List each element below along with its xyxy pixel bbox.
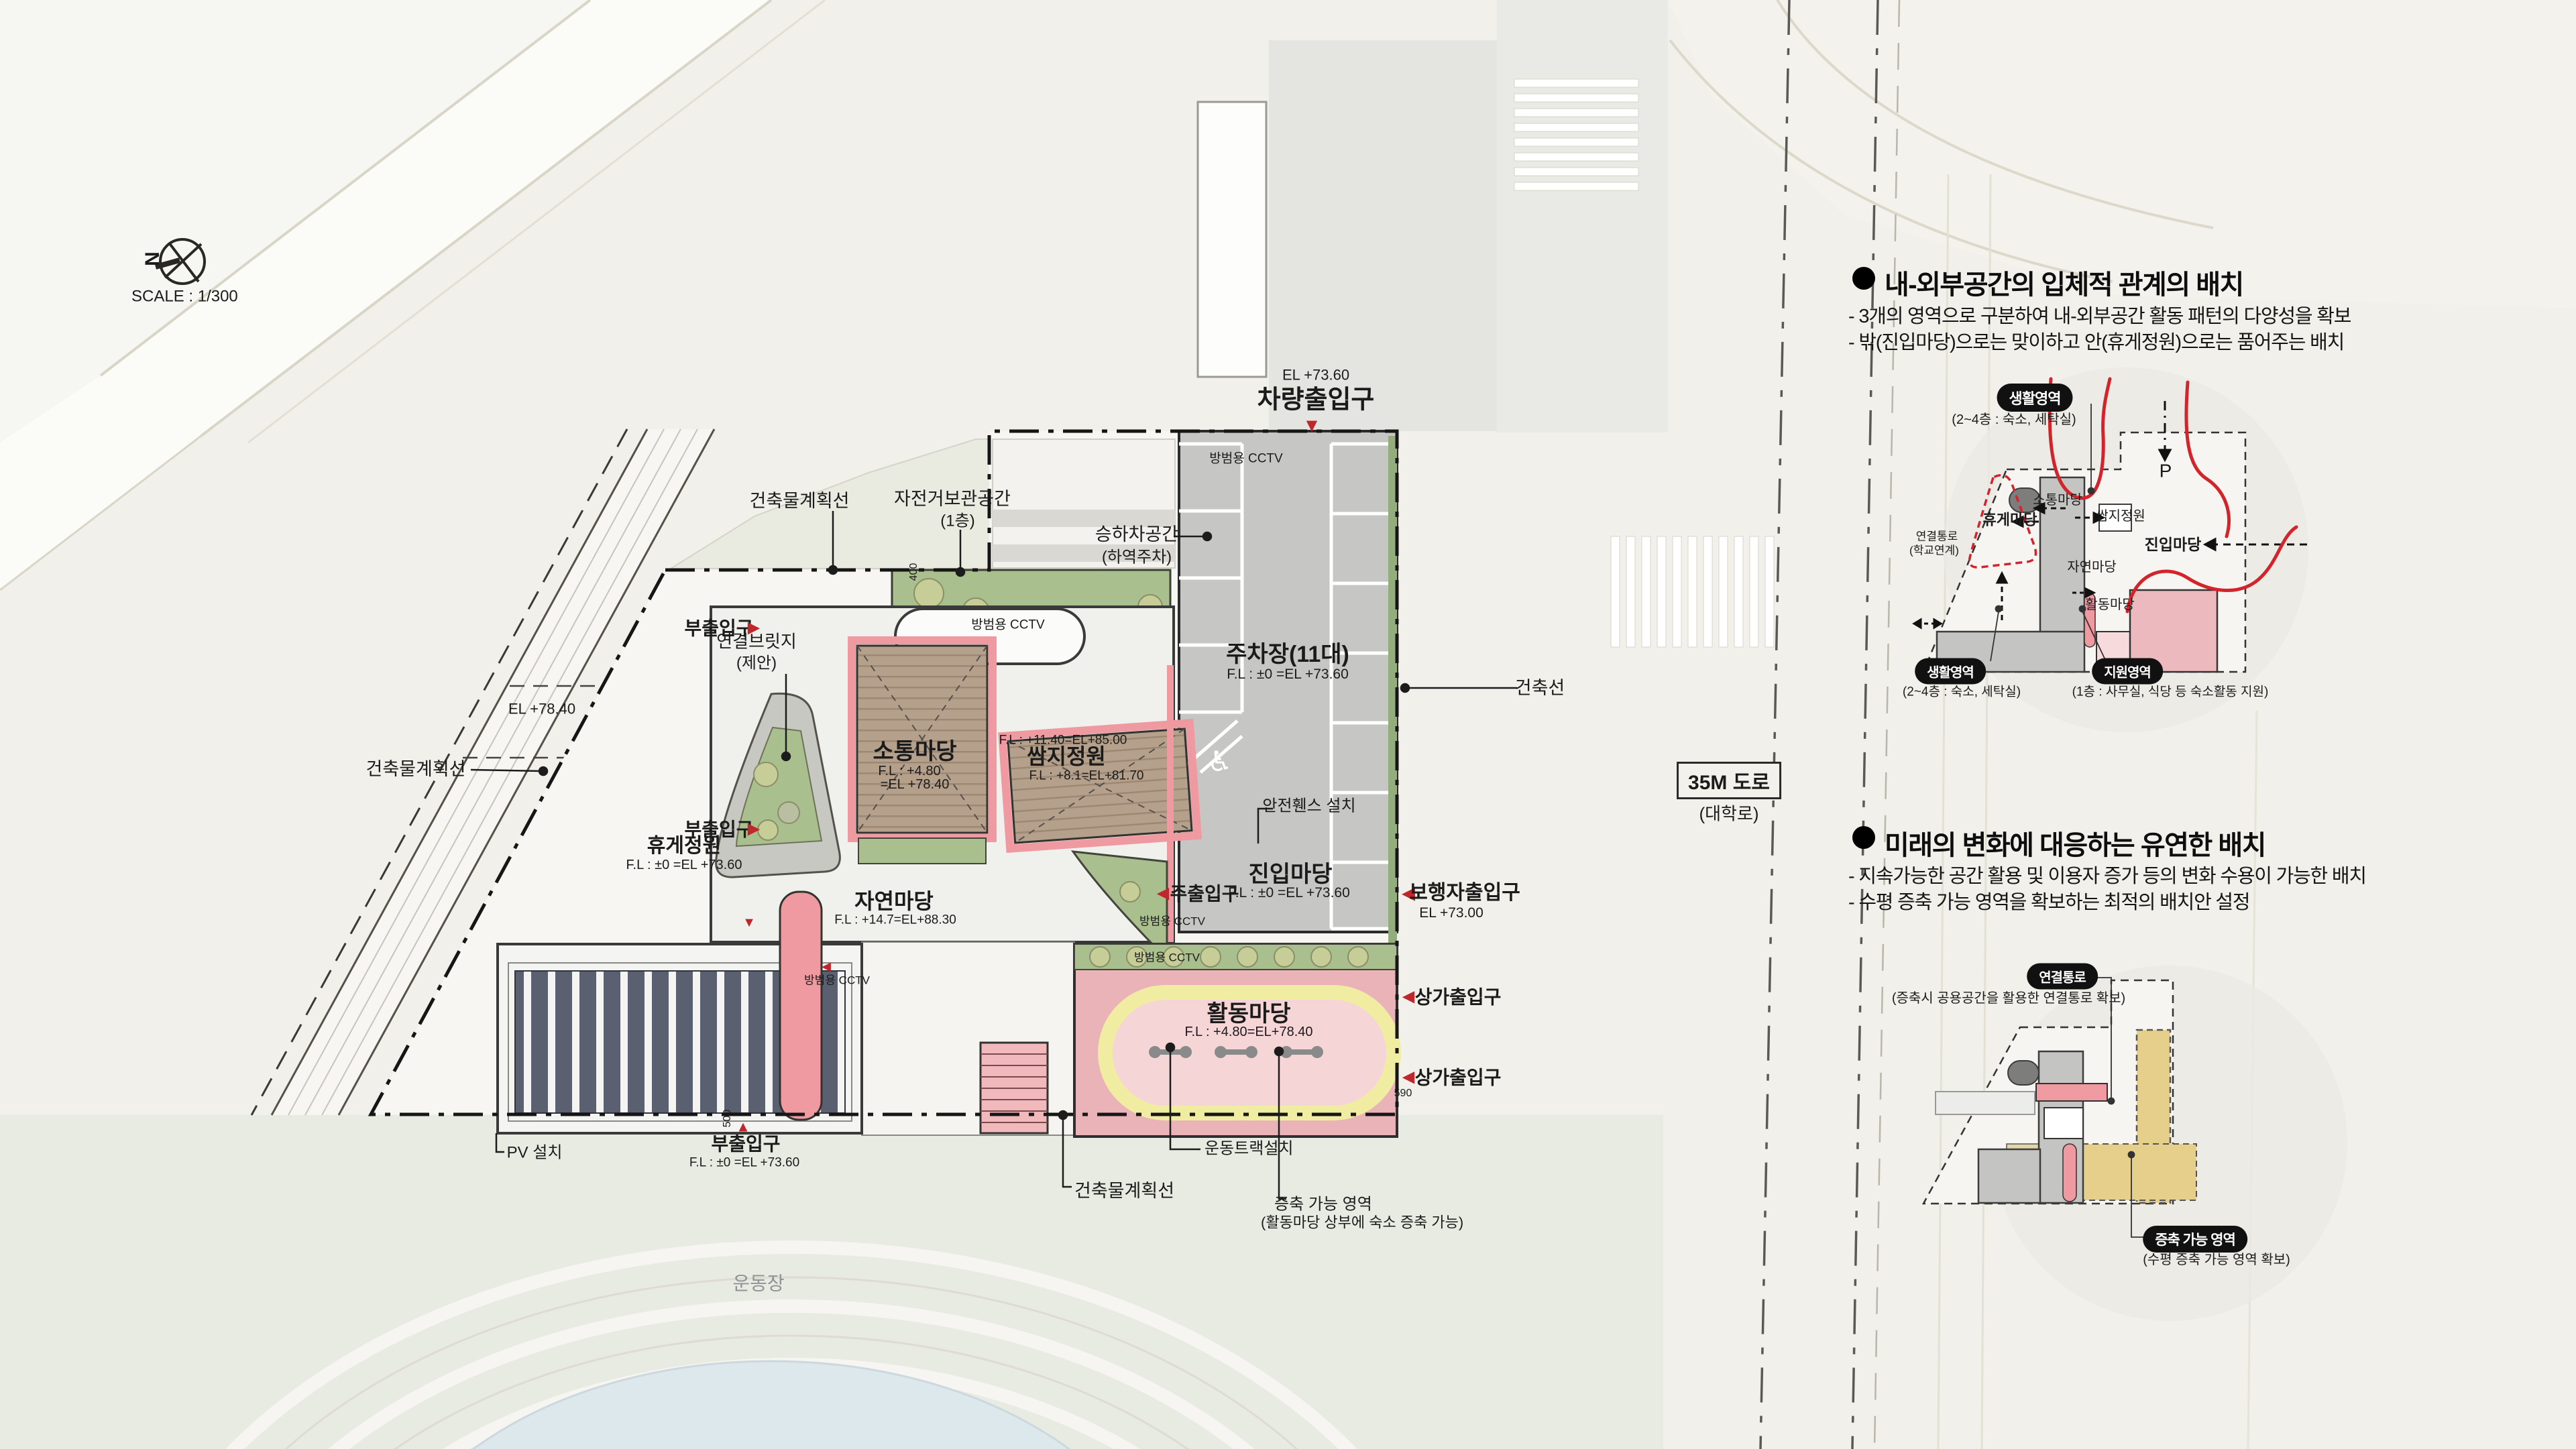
- scale-label: SCALE : 1/300: [131, 288, 238, 306]
- diagram1-comm-yard: 소통마당: [2033, 493, 2082, 508]
- cctv-label-2: 방범용 CCTV: [971, 618, 1044, 632]
- field-label: 운동장: [732, 1273, 784, 1293]
- el-car-entrance: EL +73.60: [1282, 367, 1349, 384]
- sub-entrance-top: 부출입구: [684, 618, 753, 638]
- entry-yard-label: 진입마당: [1248, 862, 1332, 887]
- expansion-area-sub: (활동마당 상부에 숙소 증축 가능): [1261, 1215, 1463, 1232]
- diagram1-parking-mark: P: [2160, 460, 2172, 481]
- el-7840: EL +78.40: [508, 701, 575, 718]
- diagram2-corridor-sub: (증축시 공용공간을 활용한 연결통로 확보): [1892, 991, 2125, 1006]
- right-arrow-icon: ▶: [748, 821, 760, 839]
- diagram1-nature-yard: 자연마당: [2067, 560, 2117, 575]
- activity-yard-fl: F.L : +4.80=EL+78.40: [1184, 1025, 1312, 1039]
- left-arrow-icon: ◀: [1157, 885, 1169, 903]
- building-line-label: 건축선: [1515, 678, 1565, 698]
- rest-garden-fl: F.L : ±0 =EL +73.60: [626, 858, 742, 872]
- left-arrow-icon: ◀: [822, 960, 831, 973]
- section1-bullet-2: - 밖(진입마당)으로는 맞이하고 안(휴게정원)으로는 품어주는 배치: [1848, 327, 2344, 355]
- pedestrian-el: EL +73.00: [1419, 905, 1483, 921]
- diagram1-badge-support-sub: (1층 : 사무실, 식당 등 숙소활동 지원): [2072, 685, 2269, 699]
- wheelchair-icon: ♿: [1207, 746, 1233, 777]
- diagram1-badge-support: 지원영역: [2092, 658, 2163, 685]
- section2-bullet-2: - 수평 증축 가능 영역을 확보하는 최적의 배치안 설정: [1848, 886, 2249, 915]
- activity-yard: [1074, 944, 1397, 1137]
- comm-yard-label: 소통마당: [873, 739, 956, 764]
- parking-fl: F.L : ±0 =EL +73.60: [1227, 666, 1349, 683]
- parking-label: 주차장(11대): [1226, 642, 1349, 667]
- shop-entrance-1: 상가출입구: [1415, 986, 1502, 1007]
- diagram1-badge-life-top-sub: (2~4층 : 숙소, 세탁실): [1952, 412, 2076, 427]
- cctv-label-1: 방범용 CCTV: [1209, 451, 1282, 465]
- activity-yard-label: 활동마당: [1207, 1001, 1290, 1027]
- dropoff-sub: (하역주차): [1102, 549, 1172, 567]
- diagram1-ssamji: 쌈지정원: [2096, 509, 2145, 524]
- diagram1-activity-yard: 활동마당: [2085, 597, 2135, 612]
- diagram2-expand-sub: (수평 증축 가능 영역 확보): [2143, 1253, 2290, 1267]
- down-arrow-icon: ▼: [1302, 414, 1321, 435]
- pedestrian-entrance-label: 보행자출입구: [1409, 882, 1520, 905]
- pv-label: PV 설치: [507, 1145, 563, 1163]
- track-install-label: 운동트랙설치: [1205, 1141, 1293, 1159]
- diagram2-badge-corridor: 연결통로: [2027, 964, 2098, 990]
- building-plan-line-top: 건축물계획선: [749, 491, 849, 511]
- dim-400: 400: [908, 563, 920, 581]
- diagram1-badge-life-bottom: 생활영역: [1915, 658, 1986, 685]
- section2-bullet-dot: [1852, 826, 1875, 849]
- section1-bullet-1: - 3개의 영역으로 구분하여 내-외부공간 활동 패턴의 다양성을 확보: [1848, 300, 2351, 329]
- section1-bullet-dot: [1852, 267, 1875, 290]
- cctv-label-3: 방범용 CCTV: [1139, 915, 1205, 927]
- nature-yard-label: 자연마당: [854, 890, 934, 914]
- bicycle-storage-floor: (1층): [940, 513, 974, 531]
- ssamji-label: 쌈지정원: [1027, 745, 1106, 769]
- playground-field: [0, 1115, 1663, 1449]
- safety-fence-label: 안전휀스 설치: [1262, 798, 1355, 816]
- diagram1-corridor-sub: (학교연계): [1909, 544, 1959, 557]
- entry-yard-fl: F.L : ±0 =EL +73.60: [1228, 885, 1350, 901]
- down-arrow-icon: ▼: [742, 915, 756, 930]
- sub-entrance-bottom-fl: F.L : ±0 =EL +73.60: [689, 1155, 799, 1169]
- diagram1-entry-yard: 진입마당: [2145, 536, 2202, 554]
- diagram1-corridor: 연결통로: [1916, 530, 1958, 542]
- dim-500: 500: [722, 1110, 734, 1128]
- cctv-label-4: 방범용 CCTV: [1134, 951, 1200, 964]
- section2-title: 미래의 변화에 대응하는 유연한 배치: [1885, 823, 2265, 862]
- right-arrow-icon: ▶: [748, 620, 760, 638]
- north-label: N: [142, 251, 164, 266]
- car-entrance-label: 차량출입구: [1257, 386, 1375, 415]
- section1-title: 내-외부공간의 입체적 관계의 배치: [1885, 263, 2243, 302]
- diagram2-badge-expand: 증축 가능 영역: [2143, 1226, 2247, 1253]
- rest-garden-label: 휴게정원: [647, 835, 721, 858]
- nature-yard-fl: F.L : +14.7=EL+88.30: [834, 913, 956, 927]
- bicycle-storage-label: 자전거보관공간: [894, 489, 1011, 509]
- bridge-sub: (제안): [736, 655, 777, 673]
- shop-entrance-2: 상가출입구: [1415, 1067, 1502, 1088]
- comm-yard-fl2: =EL +78.40: [881, 777, 950, 792]
- dropoff-label: 승하차공간: [1095, 524, 1178, 544]
- section2-bullet-1: - 지속가능한 공간 활용 및 이용자 증가 등의 변화 수용이 가능한 배치: [1848, 860, 2366, 888]
- left-arrow-icon: ◀: [1402, 988, 1414, 1006]
- diagram1-badge-life-bottom-sub: (2~4층 : 숙소, 세탁실): [1903, 685, 2021, 699]
- diagram1-badge-life-top: 생활영역: [1997, 384, 2073, 412]
- road-name-sub: (대학로): [1699, 804, 1758, 823]
- dim-590: 590: [1394, 1088, 1412, 1100]
- cctv-label-5: 방범용 CCTV: [804, 974, 870, 986]
- building-plan-line-bottom: 건축물계획선: [1074, 1181, 1174, 1201]
- expansion-area-label: 증축 가능 영역: [1274, 1196, 1372, 1214]
- sub-entrance-bottom: 부출입구: [711, 1133, 780, 1154]
- ssamji-fl2: F.L : +8.1=EL+81.70: [1029, 768, 1144, 783]
- road-name-box: 35M 도로: [1677, 762, 1781, 799]
- site-plan-sheet: ♿: [0, 0, 2576, 1449]
- left-arrow-icon: ◀: [1402, 1069, 1414, 1087]
- building-plan-line-left: 건축물계획선: [366, 759, 465, 779]
- diagram1-rest-yard: 휴게마당: [1983, 512, 2037, 529]
